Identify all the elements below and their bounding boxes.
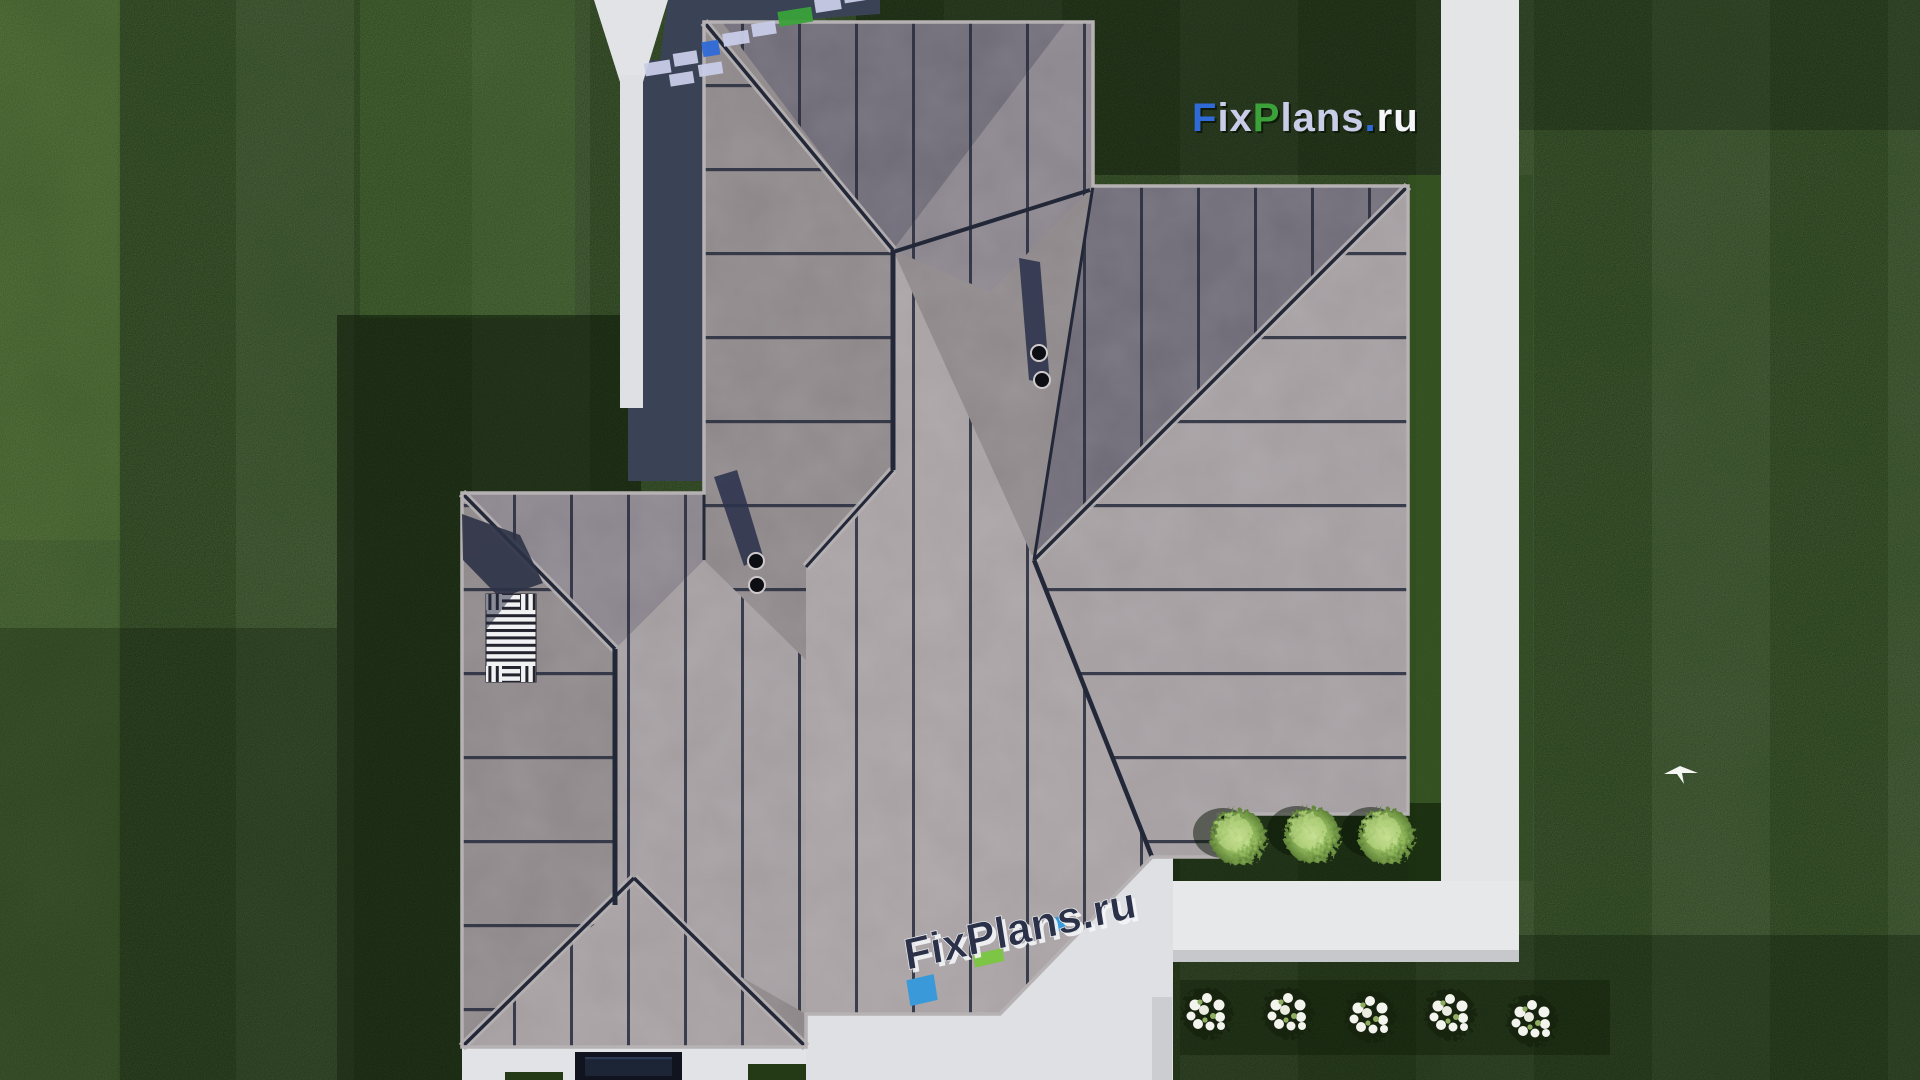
letters-ix: ix (1217, 96, 1252, 140)
path-right-vertical (1441, 0, 1519, 881)
path-horizontal-band (1173, 881, 1519, 962)
lawn-strip-right-of-path (1519, 175, 1533, 881)
flower-cluster (1507, 995, 1557, 1045)
flower-cluster (1263, 988, 1313, 1038)
chimney-pipe (1031, 345, 1047, 361)
walkway-grass-notch-right (748, 1064, 806, 1080)
path-top-left-strip (620, 75, 643, 408)
letter-p: P (1253, 96, 1281, 140)
lawn-shadow-top-right (1519, 0, 1920, 130)
flower-cluster (1425, 989, 1475, 1039)
chimney-pipe (749, 577, 765, 593)
flower-cluster (1345, 991, 1395, 1041)
render-canvas: FixPlans.ru FixPlans.ru FixPlans.ru FixP… (0, 0, 1920, 1080)
letter-f: F (1192, 96, 1217, 140)
flower-cluster (1182, 988, 1232, 1038)
aerial-render: FixPlans.ru FixPlans.ru FixPlans.ru FixP… (0, 0, 1920, 1080)
dot: . (1365, 96, 1377, 140)
path-band-shadow-edge (1173, 950, 1519, 962)
letters-lans: lans (1280, 96, 1364, 140)
trellis-panel (486, 594, 536, 682)
lawn-shadow-bottom-left (0, 628, 337, 1080)
chimney-pipe (1034, 372, 1050, 388)
patio-curb (1152, 997, 1172, 1080)
letters-ru: ru (1377, 96, 1419, 140)
watermark-top-right: FixPlans.ru FixPlans.ru (1192, 96, 1421, 142)
walkway-grass-notch-left (505, 1072, 563, 1080)
entry-canopy (575, 1052, 682, 1080)
lawn-strip-left-of-path (1408, 175, 1441, 881)
watermark-text: FixPlans.ru (1192, 96, 1419, 140)
chimney-pipe (748, 553, 764, 569)
